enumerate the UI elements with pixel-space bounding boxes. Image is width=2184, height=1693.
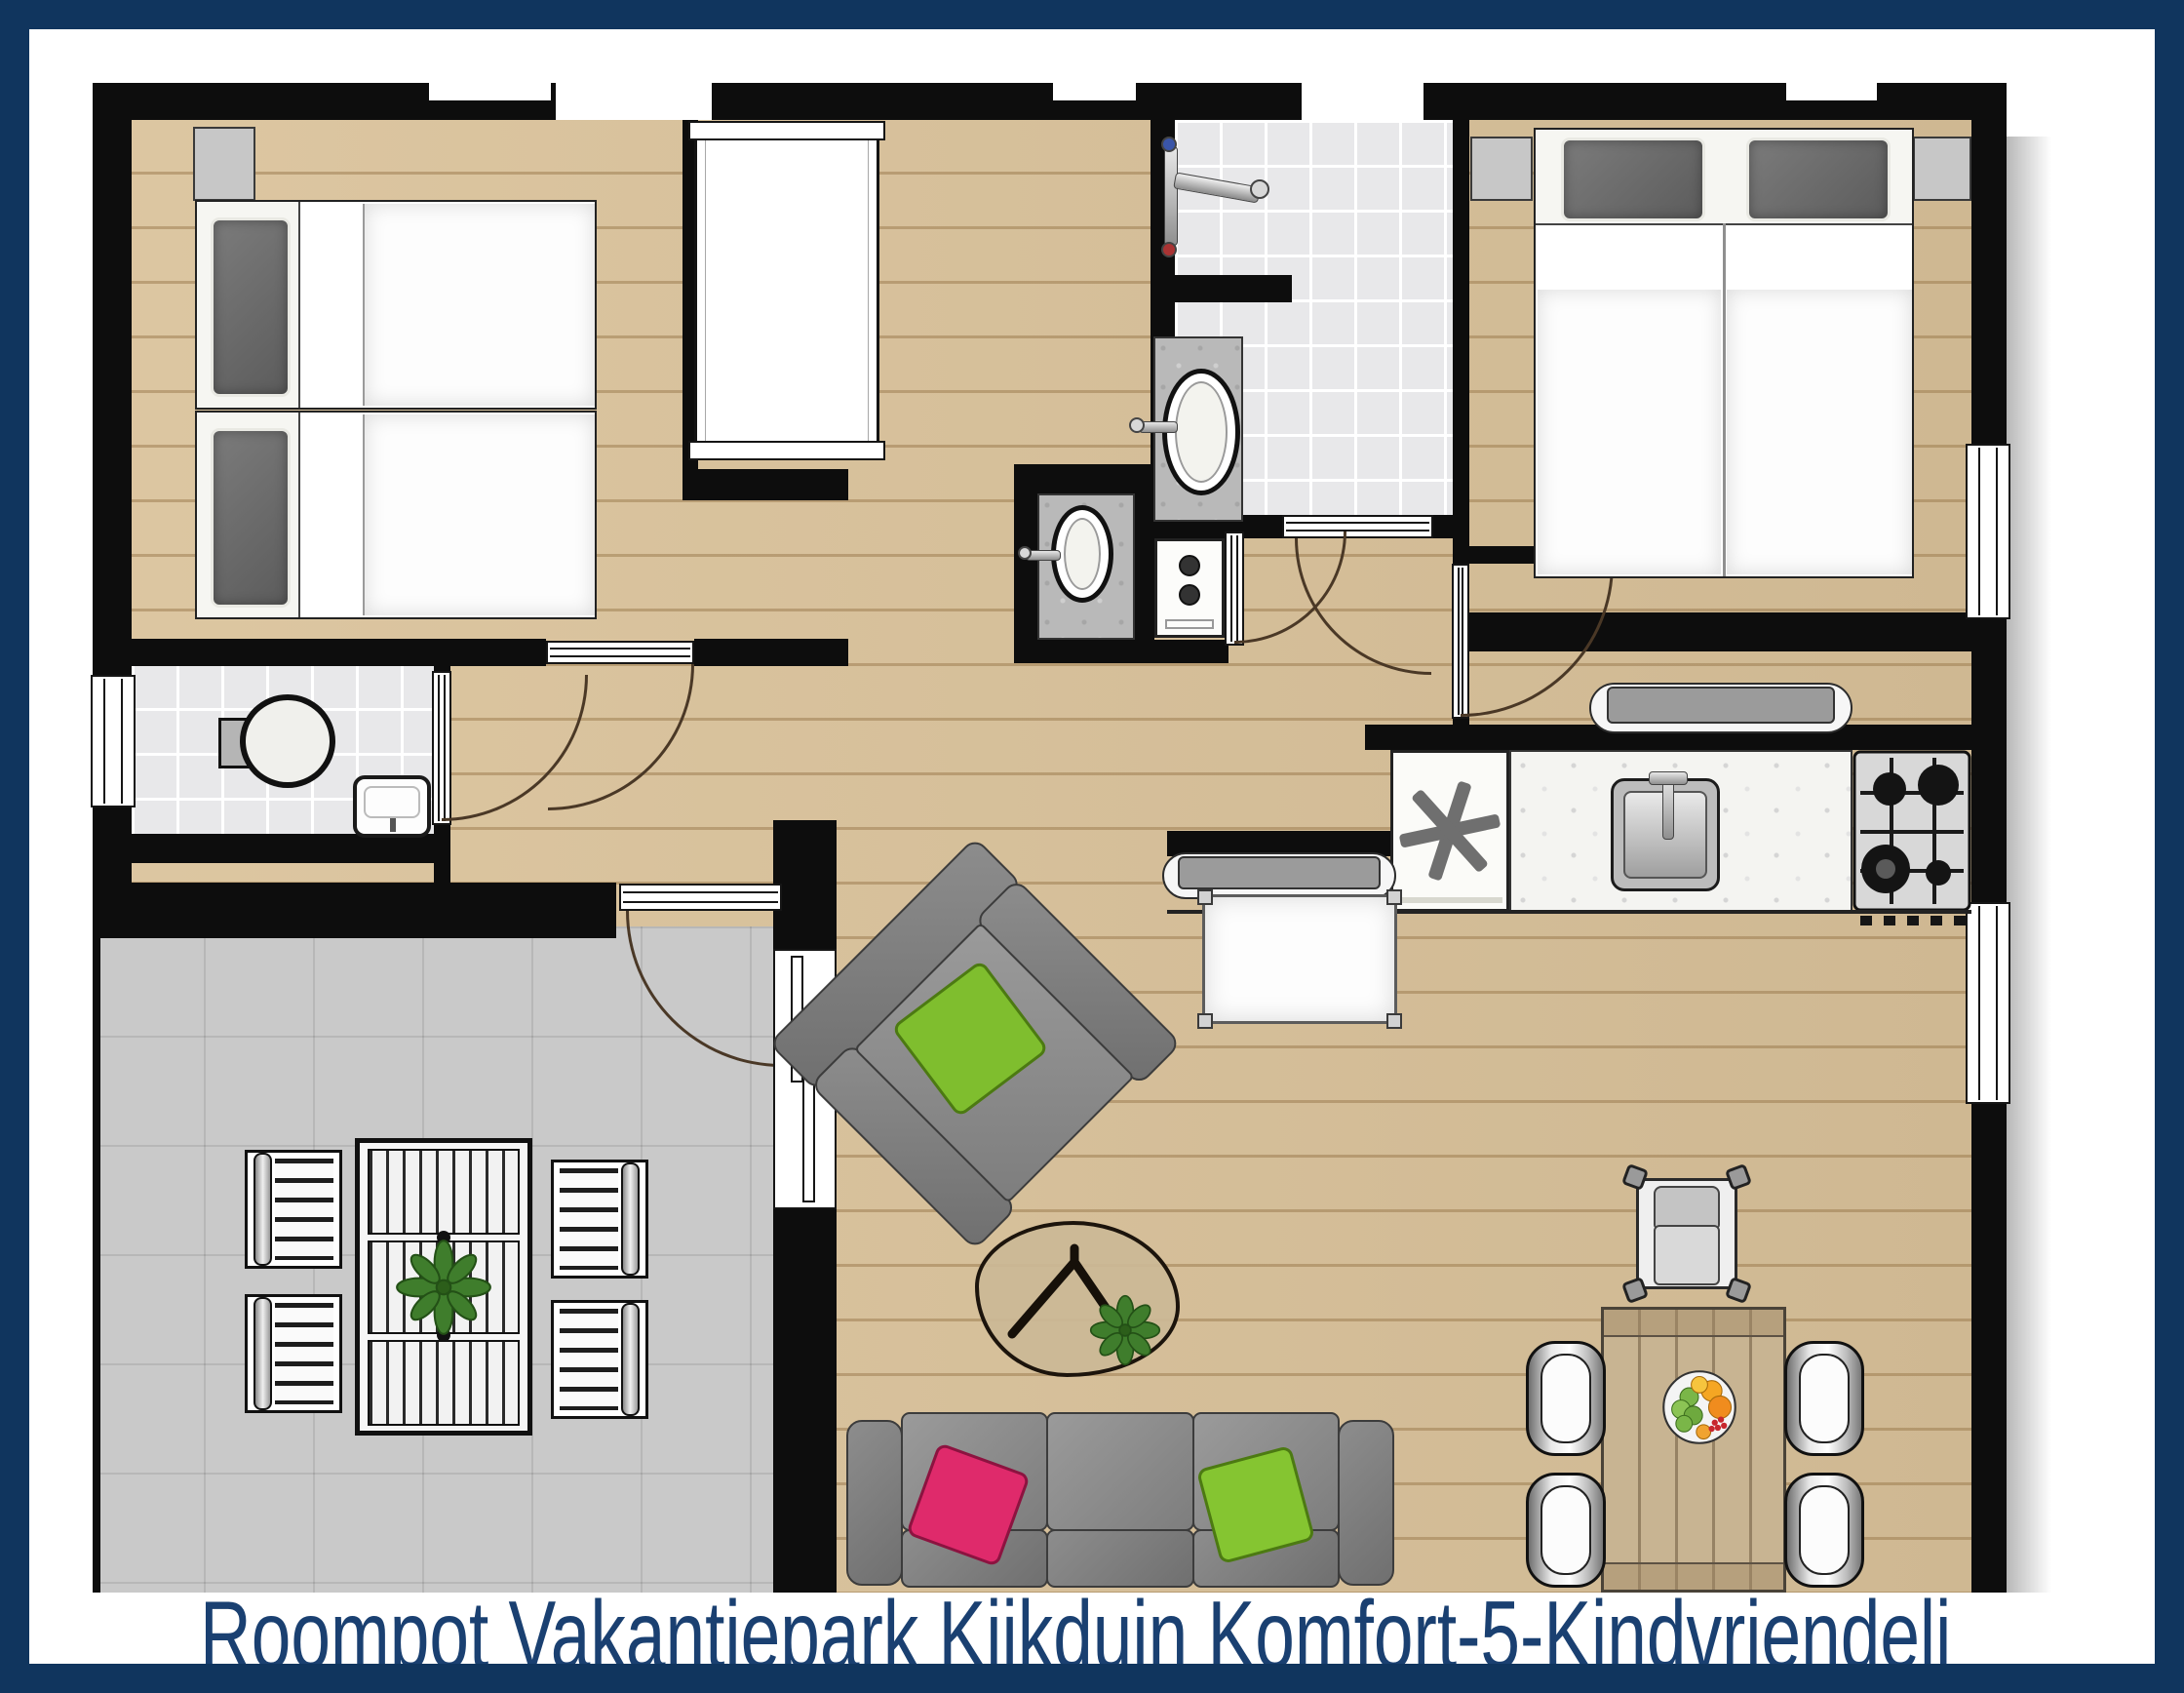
garden-chair [551, 1300, 648, 1419]
door-bedroom1 [546, 641, 694, 664]
wardrobe [694, 125, 879, 460]
table-end-board [1604, 1310, 1783, 1337]
bed-pillow [1561, 138, 1705, 221]
toilet-hand-basin [353, 775, 431, 838]
single-bed-2 [195, 411, 597, 619]
shower-bar-icon [1164, 146, 1178, 246]
sofa-seat [1046, 1412, 1194, 1531]
table-slats [368, 1340, 520, 1426]
sofa [846, 1412, 1394, 1593]
nightstand [1913, 137, 1971, 201]
basin-faucet-icon [390, 818, 396, 832]
wall-niche-divider [1135, 493, 1154, 640]
hob-knobs [1860, 916, 1966, 925]
bench [1589, 683, 1852, 733]
dining-chair [1526, 1341, 1606, 1456]
window-top-2 [1302, 83, 1423, 120]
wardrobe-cap [688, 121, 885, 140]
dining-table [1601, 1307, 1786, 1593]
sink-faucet-handle [1649, 771, 1688, 785]
wall-shower-partition [1150, 275, 1292, 302]
wall-notch [429, 83, 551, 100]
door-terrace [619, 884, 782, 911]
single-bed-1 [195, 200, 597, 410]
bench-pad [1178, 856, 1381, 889]
basin-inner [364, 786, 420, 818]
floorplan-image: ↓ [0, 0, 2184, 1693]
table-leg [1197, 889, 1213, 905]
dining-chair [1784, 1341, 1864, 1456]
wall-bedroom2-stub [1453, 546, 1536, 564]
gas-hob [1852, 750, 1971, 912]
dining-chair [1526, 1473, 1606, 1588]
bed-pillow [1746, 138, 1891, 221]
table-slats [368, 1149, 520, 1235]
bed-pillow [211, 217, 291, 397]
wall-toilet-south [132, 834, 450, 863]
sofa-armrest [846, 1420, 903, 1586]
bed-duvet [1727, 290, 1912, 574]
boiler-knob [1179, 555, 1200, 576]
bed-divider [1723, 223, 1726, 576]
wall-bedroom1-south [93, 639, 546, 666]
window-bedroom2 [1966, 444, 2010, 619]
dining-chair [1784, 1473, 1864, 1588]
bed-sheet [300, 414, 365, 615]
wall-notch [1053, 83, 1136, 100]
shower-cold-cap [1161, 242, 1177, 257]
terrace-edge [93, 926, 100, 1593]
nightstand [1470, 137, 1533, 201]
boiler-knob [1179, 584, 1200, 606]
garden-table [355, 1138, 532, 1436]
bed-duvet [1538, 290, 1721, 574]
table-leg [1386, 889, 1402, 905]
high-chair-seat [1654, 1225, 1720, 1285]
high-chair [1626, 1168, 1747, 1299]
bed-sheet [1538, 225, 1721, 292]
garden-chair [551, 1160, 648, 1279]
bed-duvet [365, 204, 595, 406]
wall-niche-west [1014, 464, 1037, 663]
wall-terrace-east-lower [773, 1209, 837, 1593]
boiler-vent [1165, 619, 1214, 629]
window-toilet [91, 675, 136, 807]
table-leg [1386, 1013, 1402, 1029]
wall-niche-north [1014, 464, 1155, 493]
toilet-bowl [240, 694, 335, 788]
bench-pad [1607, 687, 1835, 724]
bed-duvet [365, 414, 595, 615]
bed-pillow [211, 428, 291, 608]
wardrobe-inner [705, 136, 869, 450]
wall-shadow [2007, 137, 2051, 1593]
bathroom-faucet-icon [1139, 421, 1178, 433]
plant-icon [1084, 1289, 1166, 1371]
wall-terrace-east-upper [773, 820, 837, 951]
window-top-1 [556, 83, 712, 120]
frame-right [2155, 0, 2184, 1693]
frame-top [0, 0, 2184, 29]
wall-hall-stub [694, 639, 848, 666]
boiler-unit [1154, 538, 1225, 638]
wall-notch [1786, 83, 1877, 100]
high-chair-back [1654, 1186, 1720, 1229]
wall-terrace-north [93, 883, 616, 938]
wall-bedroom2-west [1453, 120, 1469, 564]
wall-niche-south [1014, 640, 1228, 663]
kitchen-sink [1611, 778, 1720, 891]
coffee-table [975, 1221, 1180, 1377]
table-leg [1197, 1013, 1213, 1029]
double-bed [1534, 128, 1914, 578]
shower-handle-knob [1250, 179, 1269, 199]
garden-chair [245, 1150, 342, 1269]
frame-bottom [0, 1664, 2184, 1693]
frame-left [0, 0, 29, 1693]
nightstand [193, 127, 255, 201]
side-table [1202, 894, 1397, 1024]
garden-chair [245, 1294, 342, 1413]
wall-right [1971, 120, 2007, 1593]
hall-faucet-knob [1018, 546, 1032, 560]
sofa-armrest [1338, 1420, 1394, 1586]
freezer-base [1397, 897, 1502, 903]
bed-sheet [1727, 225, 1912, 292]
wall-closet-stub [682, 469, 848, 500]
wardrobe-cap [688, 441, 885, 460]
shower-hot-cap [1161, 137, 1177, 152]
plant-icon [393, 1237, 494, 1338]
fruit-bowl-icon [1658, 1366, 1740, 1448]
bed-sheet [300, 204, 365, 406]
sofa-back [1046, 1529, 1194, 1588]
bathroom-faucet-knob [1129, 417, 1145, 433]
freezer [1390, 750, 1509, 912]
window-living [1966, 902, 2010, 1104]
